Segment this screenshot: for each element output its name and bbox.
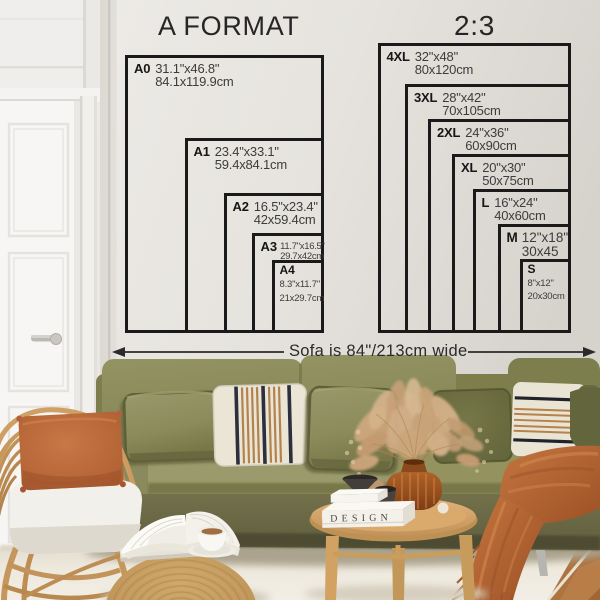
svg-text:DESIGN: DESIGN [330,512,392,524]
